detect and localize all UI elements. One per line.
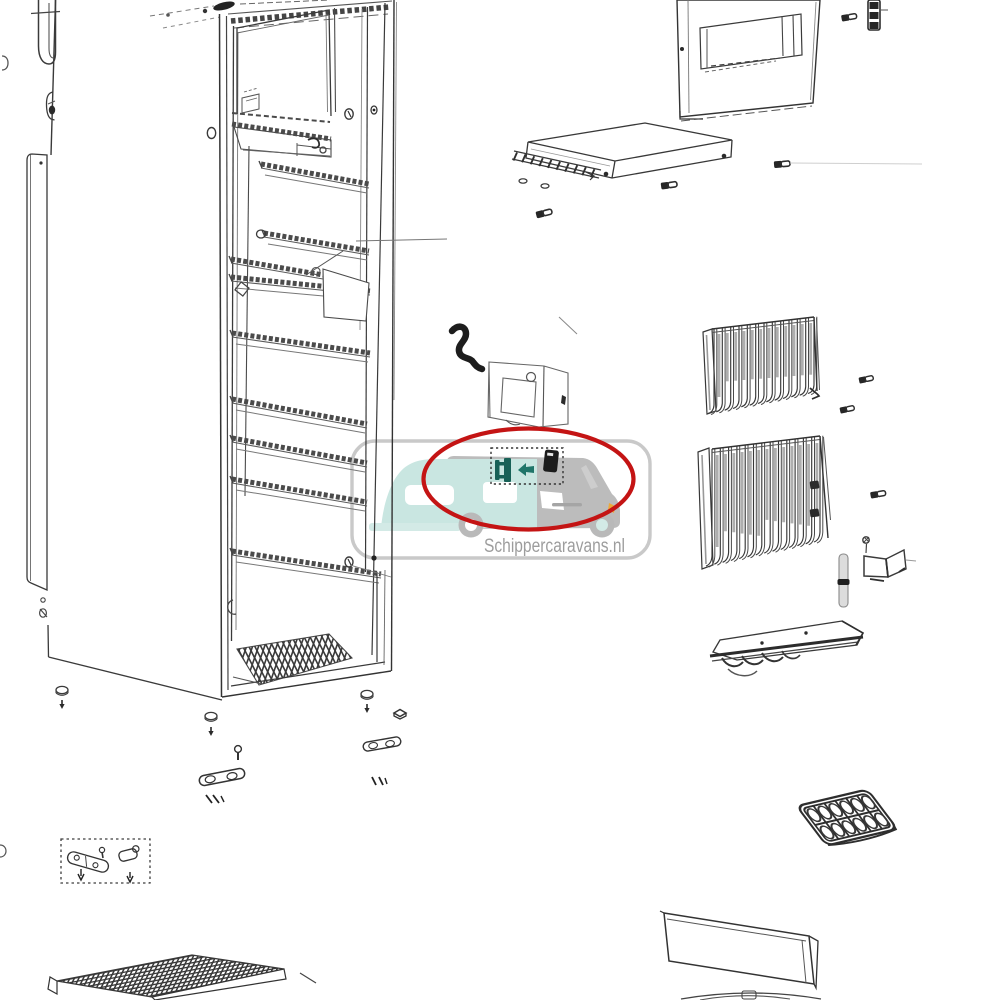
svg-text:Schippercaravans.nl: Schippercaravans.nl [484, 536, 625, 557]
